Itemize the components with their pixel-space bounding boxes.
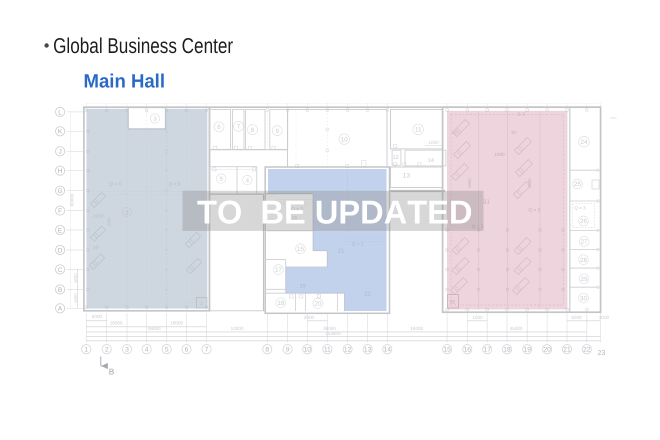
svg-text:21: 21 [563, 347, 571, 354]
svg-text:Global Business Center: Global Business Center [53, 34, 233, 58]
svg-text:2000: 2000 [304, 315, 315, 320]
svg-text:23: 23 [598, 350, 606, 357]
svg-text:10000: 10000 [231, 326, 244, 331]
svg-text:2000: 2000 [106, 217, 111, 227]
svg-text:32: 32 [450, 300, 456, 306]
svg-text:Q = 3: Q = 3 [109, 182, 121, 188]
svg-text:18000: 18000 [170, 321, 183, 326]
svg-text:5: 5 [165, 347, 169, 354]
svg-text:F: F [58, 208, 62, 215]
svg-text:153600: 153600 [325, 331, 341, 336]
svg-text:45000: 45000 [510, 326, 523, 331]
svg-text:18000: 18000 [110, 321, 123, 326]
svg-text:1000: 1000 [472, 315, 483, 320]
svg-text:3: 3 [125, 347, 129, 354]
svg-text:1000: 1000 [494, 152, 505, 157]
svg-text:2000: 2000 [93, 214, 104, 219]
svg-text:18400: 18400 [410, 326, 423, 331]
svg-text:20: 20 [314, 301, 321, 308]
svg-text:6000: 6000 [571, 315, 582, 320]
svg-text:22: 22 [364, 291, 371, 298]
svg-text:Q = 3: Q = 3 [528, 208, 540, 214]
svg-text:Q = 3: Q = 3 [574, 205, 586, 210]
svg-text:18: 18 [277, 300, 284, 307]
svg-text:L: L [58, 109, 62, 116]
svg-text:6000: 6000 [92, 314, 103, 319]
svg-text:26: 26 [580, 218, 587, 225]
svg-text:17: 17 [275, 267, 282, 274]
svg-text:13: 13 [403, 173, 411, 180]
svg-text:3000: 3000 [599, 315, 610, 320]
svg-text:24: 24 [581, 139, 588, 146]
svg-text:Q = 3: Q = 3 [169, 182, 181, 188]
svg-text:27: 27 [581, 239, 588, 246]
svg-text:6: 6 [185, 347, 189, 354]
svg-text:11: 11 [324, 347, 331, 354]
svg-text:1000: 1000 [428, 140, 439, 145]
svg-text:D: D [58, 247, 63, 254]
svg-text:Q = 3: Q = 3 [352, 242, 364, 248]
svg-text:4: 4 [145, 347, 149, 354]
svg-text:K: K [58, 129, 63, 136]
svg-text:19: 19 [299, 284, 305, 290]
svg-text:19: 19 [523, 347, 531, 354]
svg-text:6: 6 [217, 124, 221, 131]
svg-text:15: 15 [297, 246, 304, 253]
svg-text:25: 25 [574, 181, 581, 188]
svg-text:13: 13 [364, 347, 372, 354]
svg-text:9: 9 [286, 347, 290, 354]
svg-text:60000: 60000 [70, 193, 75, 206]
svg-text:28: 28 [580, 257, 587, 264]
svg-text:B: B [109, 367, 115, 377]
svg-text:E: E [58, 227, 63, 234]
svg-text:6000: 6000 [467, 178, 472, 188]
svg-text:15: 15 [443, 347, 451, 354]
svg-text:A: A [58, 306, 63, 313]
svg-text:8: 8 [251, 127, 255, 134]
svg-text:45°: 45° [93, 245, 100, 250]
svg-text:7: 7 [205, 347, 209, 354]
svg-text:J: J [58, 149, 61, 156]
svg-text:18: 18 [503, 347, 511, 354]
svg-text:7: 7 [237, 124, 241, 131]
svg-text:14: 14 [384, 347, 392, 354]
svg-text:4: 4 [246, 177, 250, 184]
svg-text:8: 8 [265, 347, 269, 354]
svg-text:9: 9 [276, 128, 280, 135]
svg-text:10: 10 [304, 347, 312, 354]
svg-text:21: 21 [338, 248, 345, 255]
svg-text:B: B [58, 287, 62, 294]
svg-text:17: 17 [483, 347, 491, 354]
svg-text:1: 1 [84, 347, 88, 354]
svg-text:1: 1 [200, 301, 203, 307]
svg-text:29: 29 [581, 276, 588, 283]
svg-text:C: C [58, 267, 63, 274]
svg-text:12: 12 [344, 347, 352, 354]
svg-text:11: 11 [415, 127, 422, 134]
svg-text:36000: 36000 [148, 326, 161, 331]
svg-text:5: 5 [219, 176, 223, 183]
svg-text:14: 14 [428, 158, 434, 164]
svg-text:16: 16 [464, 347, 472, 354]
svg-text:H: H [58, 168, 63, 175]
svg-text:45°: 45° [511, 130, 518, 135]
svg-text:20: 20 [543, 347, 551, 354]
svg-text:10: 10 [341, 136, 348, 143]
svg-text:12: 12 [393, 155, 399, 161]
svg-text:G: G [58, 188, 63, 195]
svg-text:30: 30 [580, 295, 587, 302]
svg-text:Main Hall: Main Hall [84, 72, 166, 93]
svg-text:2: 2 [105, 347, 109, 354]
svg-text:22: 22 [583, 347, 591, 354]
svg-text:2-3: 2-3 [518, 112, 525, 118]
svg-text:31: 31 [483, 198, 490, 205]
